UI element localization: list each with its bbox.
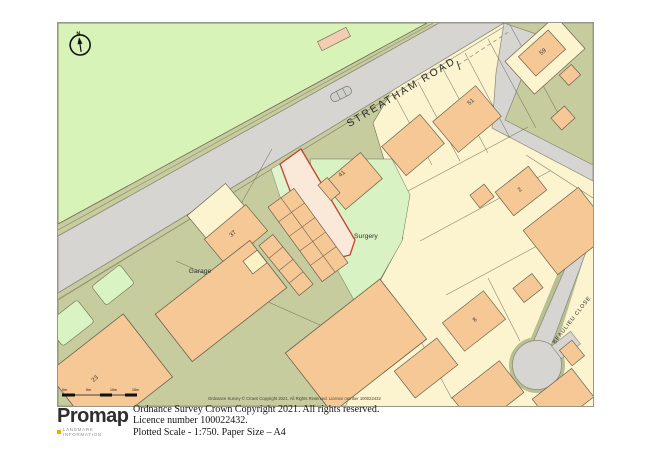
promap-logo-text: Promap [57,406,132,426]
promap-print-page: STREATHAM ROAD BEAULIEU CLOSE Surgery Ga… [0,0,650,459]
landmark-label: LANDMARK INFORMATION [63,427,132,437]
landmark-dot-icon [57,430,61,434]
map-canvas: STREATHAM ROAD BEAULIEU CLOSE Surgery Ga… [58,23,593,406]
compass-north-label: N [76,31,81,37]
footer-copyright-block: Ordnance Survey Crown Copyright 2021. Al… [133,404,379,438]
scale-label-0: 0m [62,388,67,392]
scale-label-3: 15m [132,388,139,392]
footer-line-copyright: Ordnance Survey Crown Copyright 2021. Al… [133,404,379,415]
surgery-label: Surgery [354,233,378,240]
promap-logo: Promap LANDMARK INFORMATION [57,406,132,437]
garage-label: Garage [189,268,212,275]
footer-line-licence: Licence number 100022432. [133,415,379,426]
map-frame: STREATHAM ROAD BEAULIEU CLOSE Surgery Ga… [57,22,594,407]
map-copyright-text: Ordnance Survey © Crown Copyright 2021. … [208,396,381,401]
scale-label-1: 5m [86,388,91,392]
scale-label-2: 10m [110,388,117,392]
footer-line-scale: Plotted Scale - 1:750. Paper Size – A4 [133,427,379,438]
